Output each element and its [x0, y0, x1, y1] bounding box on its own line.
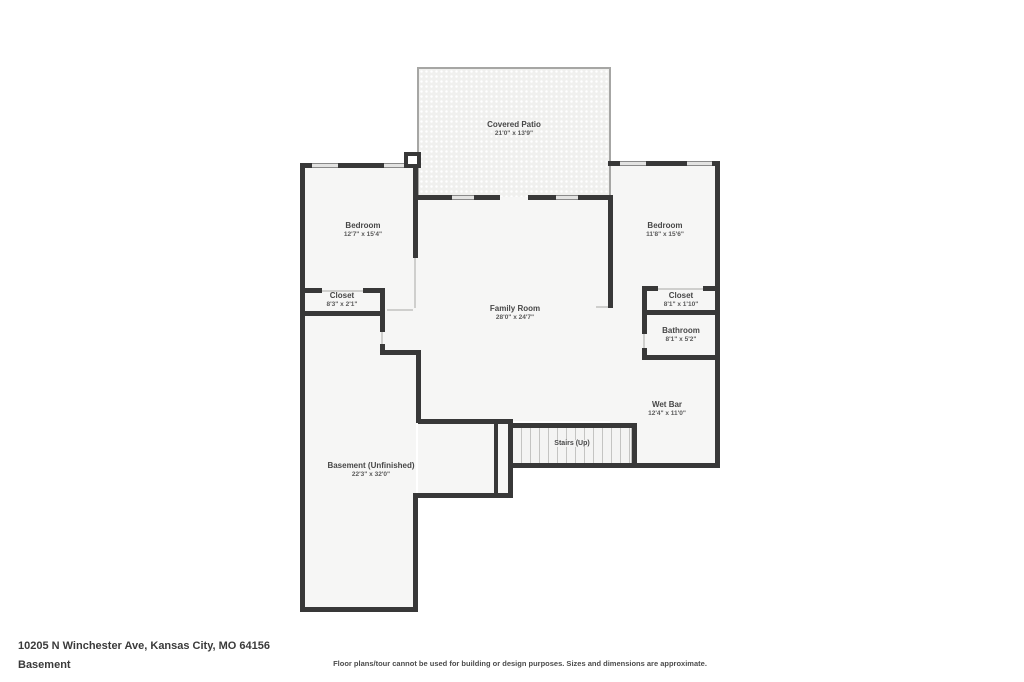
room-name: Bedroom [344, 221, 382, 231]
room-label-bedroom-right: Bedroom 11'8" x 15'6" [646, 221, 684, 239]
wall [510, 423, 637, 428]
room-name: Bedroom [646, 221, 684, 231]
door-opening [387, 309, 413, 311]
room-label-closet-left: Closet 8'3" x 2'1" [327, 291, 358, 309]
wall [413, 493, 418, 612]
wall [380, 350, 421, 355]
room-label-family-room: Family Room 28'0" x 24'7" [490, 304, 540, 322]
wall [642, 355, 720, 360]
floor-plan: Covered Patio 21'0" x 13'9" Bedroom 12'7… [0, 0, 1024, 682]
room-dims: 8'1" x 1'10" [664, 301, 699, 309]
room-dims: 22'3" x 32'0" [327, 471, 414, 479]
room-label-stairs: Stairs (Up) [551, 440, 592, 447]
window [312, 163, 338, 168]
wall [413, 493, 513, 498]
room-name: Family Room [490, 304, 540, 314]
wall [608, 161, 620, 166]
window [687, 161, 712, 166]
room-name: Basement (Unfinished) [327, 461, 414, 471]
wall [300, 163, 305, 612]
wall [300, 288, 322, 293]
room-dims: 12'4" x 11'0" [648, 410, 686, 418]
door-opening [658, 288, 703, 290]
room-label-bathroom: Bathroom 8'1" x 5'2" [662, 326, 700, 344]
room-label-basement: Basement (Unfinished) 22'3" x 32'0" [327, 461, 414, 479]
wall [363, 288, 385, 293]
room-name: Wet Bar [648, 400, 686, 410]
wall [703, 286, 720, 291]
room-label-bedroom-left: Bedroom 12'7" x 15'4" [344, 221, 382, 239]
window [452, 195, 474, 200]
wall [300, 163, 312, 168]
door-opening [414, 258, 416, 308]
room-label-wet-bar: Wet Bar 12'4" x 11'0" [648, 400, 686, 418]
room-dims: 8'1" x 5'2" [662, 336, 700, 344]
floor-plan-page: Covered Patio 21'0" x 13'9" Bedroom 12'7… [0, 0, 1024, 682]
wall-bump [404, 152, 421, 168]
wall [416, 350, 421, 423]
floor-level-label: Basement [18, 659, 71, 671]
wall [578, 195, 612, 200]
wall [510, 463, 720, 468]
wall [338, 163, 384, 168]
window [620, 161, 646, 166]
room-name: Closet [327, 291, 358, 301]
wall [300, 607, 418, 612]
wall [474, 195, 500, 200]
room-name: Covered Patio [487, 120, 541, 130]
wall [418, 419, 513, 424]
room-label-covered-patio: Covered Patio 21'0" x 13'9" [487, 120, 541, 138]
room-dims: 8'3" x 2'1" [327, 301, 358, 309]
disclaimer-text: Floor plans/tour cannot be used for buil… [333, 659, 707, 668]
door-opening [643, 334, 645, 348]
wall [413, 163, 418, 258]
room-dims: 28'0" x 24'7" [490, 314, 540, 322]
window [556, 195, 578, 200]
wall [508, 419, 513, 498]
wall [632, 423, 637, 468]
room-name: Closet [664, 291, 699, 301]
property-address: 10205 N Winchester Ave, Kansas City, MO … [18, 640, 270, 652]
wall [494, 423, 498, 495]
wall [380, 344, 385, 355]
wall [608, 195, 613, 308]
wall [300, 311, 385, 316]
wall [528, 195, 556, 200]
wall [380, 288, 385, 332]
room-dims: 11'8" x 15'6" [646, 231, 684, 239]
wall [642, 310, 720, 315]
room-name: Bathroom [662, 326, 700, 336]
room-dims: 21'0" x 13'9" [487, 130, 541, 138]
wall [416, 195, 452, 200]
window [384, 163, 404, 168]
room-dims: 12'7" x 15'4" [344, 231, 382, 239]
room-label-closet-right: Closet 8'1" x 1'10" [664, 291, 699, 309]
wall [646, 161, 687, 166]
